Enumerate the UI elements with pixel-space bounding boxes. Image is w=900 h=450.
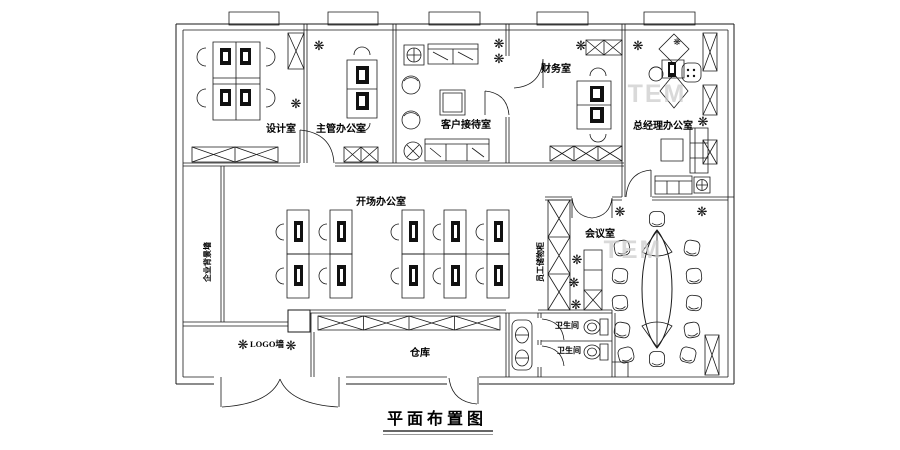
interior-walls	[183, 24, 734, 377]
drawing-title: 平面布置图	[387, 409, 487, 428]
room-finance	[577, 68, 611, 142]
plant-icon: ❋	[291, 97, 302, 112]
room-supervisor	[347, 47, 377, 131]
label-locker: 员工储物柜	[535, 242, 545, 282]
plant-icon: ❋	[615, 205, 626, 220]
plant-icon: ❋	[238, 338, 249, 353]
plant-icon: ❋	[698, 115, 709, 130]
room-design	[197, 42, 275, 120]
plant-icon: ❋	[286, 339, 297, 354]
room-gm	[649, 34, 710, 194]
plant-icon: ❋	[569, 276, 580, 291]
label-logo-wall: LOGO墙	[250, 339, 285, 349]
label-reception-room: 客户接待室	[440, 118, 491, 131]
plant-icon: ❋	[571, 298, 582, 313]
open-office-workstations	[276, 210, 509, 298]
label-meeting-room: 会议室	[585, 227, 615, 240]
label-warehouse: 仓库	[409, 346, 430, 359]
plant-icon: ❋	[673, 38, 681, 48]
plant-icon: ❋	[572, 253, 583, 268]
plant-icon: ❋	[576, 39, 587, 54]
drawing-title-block: 平面布置图	[383, 409, 493, 435]
window-bays	[229, 12, 695, 25]
label-bg-wall: 企业背景墙	[202, 242, 212, 283]
plant-icon: ❋	[314, 39, 325, 54]
watermark-text: TEM	[604, 236, 663, 264]
plant-icon: ❋	[697, 205, 708, 220]
watermark-text: TEM	[628, 80, 687, 108]
floor-plan-canvas: ❋ ❋ ❋ ❋ ❋ ❋ ❋ ❋ ❋ ❋ ❋ ❋ ❋ ❋ ❋ TEM TEM 设计…	[0, 0, 900, 450]
room-reception	[402, 44, 489, 161]
room-meeting	[612, 212, 702, 367]
label-toilet-upper: 卫生间	[555, 320, 579, 330]
plant-icon: ❋	[494, 37, 505, 52]
label-open-office: 开场办公室	[356, 195, 406, 208]
label-toilet-lower: 卫生间	[557, 345, 581, 355]
label-finance-room: 财务室	[540, 62, 571, 75]
watermarks: TEM TEM	[604, 80, 687, 264]
label-supervisor-office: 主管办公室	[316, 122, 366, 135]
plant-icon: ❋	[633, 39, 644, 54]
plant-icon: ❋	[494, 52, 505, 67]
label-design-room: 设计室	[266, 122, 296, 135]
label-gm-office: 总经理办公室	[633, 119, 693, 132]
